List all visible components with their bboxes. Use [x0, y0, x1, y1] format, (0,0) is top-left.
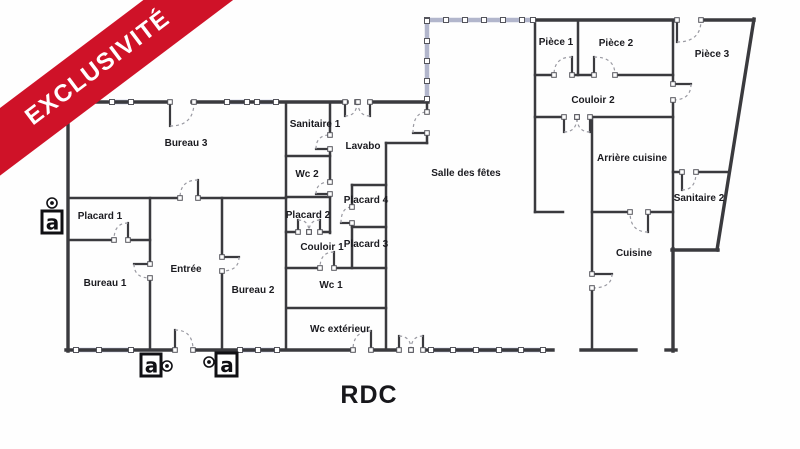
junction-node	[421, 348, 426, 353]
junction-node	[425, 79, 430, 84]
floor-title: RDC	[309, 381, 429, 410]
junction-node	[275, 348, 280, 353]
junction-node	[332, 266, 337, 271]
junction-node	[429, 348, 434, 353]
junction-node	[168, 100, 173, 105]
junction-node	[328, 192, 333, 197]
junction-node	[220, 255, 225, 260]
junction-node	[409, 348, 414, 353]
junction-node	[129, 348, 134, 353]
junction-node	[368, 100, 373, 105]
junction-node	[274, 100, 279, 105]
junction-node	[541, 348, 546, 353]
junction-node	[501, 18, 506, 23]
junction-node	[178, 196, 183, 201]
junction-node	[351, 348, 356, 353]
room-label-salle-des-fetes: Salle des fêtes	[431, 168, 501, 179]
room-label-wc-2: Wc 2	[295, 169, 319, 180]
junction-node	[356, 100, 361, 105]
room-label-wc-exterieur: Wc extérieur	[310, 324, 370, 335]
door-swing-arc	[170, 102, 194, 126]
room-label-sanitaire-1: Sanitaire 1	[290, 119, 341, 130]
junction-node	[463, 18, 468, 23]
junction-node	[328, 147, 333, 152]
junction-node	[613, 73, 618, 78]
junction-node	[694, 170, 699, 175]
junction-node	[699, 18, 704, 23]
junction-node	[646, 210, 651, 215]
photo-marker-bottom-left[interactable]: a	[141, 354, 172, 378]
junction-node	[148, 262, 153, 267]
junction-node	[296, 230, 301, 235]
junction-node	[318, 266, 323, 271]
room-label-arriere-cuisine: Arrière cuisine	[597, 153, 667, 164]
junction-node	[675, 18, 680, 23]
room-label-bureau-3: Bureau 3	[165, 138, 208, 149]
marker-letter: a	[220, 353, 234, 377]
junction-node	[520, 18, 525, 23]
windows-layer	[76, 20, 545, 350]
room-label-wc-1: Wc 1	[319, 280, 343, 291]
marker-dot-icon	[50, 201, 54, 205]
room-label-placard-4: Placard 4	[344, 195, 389, 206]
junction-node	[350, 221, 355, 226]
junction-node	[425, 19, 430, 24]
junction-node	[148, 276, 153, 281]
junction-node	[397, 348, 402, 353]
junction-node	[256, 348, 261, 353]
junction-node	[590, 286, 595, 291]
room-label-placard-3: Placard 3	[344, 239, 389, 250]
junction-node	[590, 272, 595, 277]
junction-node	[482, 18, 487, 23]
room-label-piece-1: Pièce 1	[539, 37, 574, 48]
photo-marker-bottom-right[interactable]: a	[204, 353, 237, 377]
marker-letter: a	[145, 354, 159, 378]
junction-node	[220, 269, 225, 274]
junction-node	[318, 230, 323, 235]
junction-node	[225, 100, 230, 105]
junction-node	[562, 115, 567, 120]
junction-node	[451, 348, 456, 353]
walls-layer	[66, 19, 754, 351]
photo-marker-left[interactable]: a	[42, 198, 62, 235]
junction-node	[425, 39, 430, 44]
junction-node	[671, 82, 676, 87]
junction-node	[126, 238, 131, 243]
junction-node	[592, 73, 597, 78]
junction-node	[369, 348, 374, 353]
junction-node	[112, 238, 117, 243]
junction-node	[129, 100, 134, 105]
room-labels-layer: Bureau 3 Sanitaire 1 Lavabo Wc 2 Placard…	[78, 37, 730, 335]
junction-node	[74, 348, 79, 353]
junction-node	[307, 230, 312, 235]
junction-node	[588, 115, 593, 120]
marker-letter: a	[46, 211, 60, 235]
room-label-couloir-1: Couloir 1	[300, 242, 344, 253]
door-swing-arc	[413, 112, 427, 133]
floor-plan-page: Bureau 3 Sanitaire 1 Lavabo Wc 2 Placard…	[0, 0, 800, 449]
door-swing-arc	[677, 20, 701, 42]
junction-node	[444, 18, 449, 23]
door-swing-arc	[594, 57, 615, 75]
junction-node	[575, 115, 580, 120]
room-label-placard-1: Placard 1	[78, 211, 123, 222]
room-label-cuisine: Cuisine	[616, 248, 653, 259]
junction-node	[425, 59, 430, 64]
marker-dot-icon	[165, 364, 169, 368]
doors-layer	[114, 20, 701, 350]
junction-node	[680, 170, 685, 175]
room-label-bureau-1: Bureau 1	[84, 278, 127, 289]
junction-node	[474, 348, 479, 353]
nodes-layer	[74, 18, 704, 353]
door-swing-arc	[175, 330, 193, 350]
door-swing-arc	[592, 274, 612, 288]
junction-node	[173, 348, 178, 353]
junction-node	[255, 100, 260, 105]
junction-node	[425, 110, 430, 115]
junction-node	[196, 196, 201, 201]
junction-node	[425, 97, 430, 102]
door-swing-arc	[630, 212, 648, 232]
junction-node	[671, 98, 676, 103]
room-label-couloir-2: Couloir 2	[571, 95, 615, 106]
junction-node	[343, 100, 348, 105]
junction-node	[519, 348, 524, 353]
room-label-piece-3: Pièce 3	[695, 49, 730, 60]
junction-node	[245, 100, 250, 105]
junction-node	[192, 100, 197, 105]
marker-dot-icon	[207, 360, 211, 364]
room-label-placard-2: Placard 2	[286, 210, 331, 221]
room-label-lavabo: Lavabo	[345, 141, 380, 152]
junction-node	[97, 348, 102, 353]
junction-node	[425, 131, 430, 136]
junction-node	[328, 180, 333, 185]
room-label-entree: Entrée	[170, 264, 202, 275]
room-label-bureau-2: Bureau 2	[232, 285, 275, 296]
junction-node	[570, 73, 575, 78]
room-label-piece-2: Pièce 2	[599, 38, 634, 49]
junction-node	[628, 210, 633, 215]
junction-node	[328, 133, 333, 138]
junction-node	[110, 100, 115, 105]
junction-node	[531, 18, 536, 23]
junction-node	[497, 348, 502, 353]
room-label-sanitaire-2: Sanitaire 2	[674, 193, 725, 204]
junction-node	[191, 348, 196, 353]
junction-node	[552, 73, 557, 78]
